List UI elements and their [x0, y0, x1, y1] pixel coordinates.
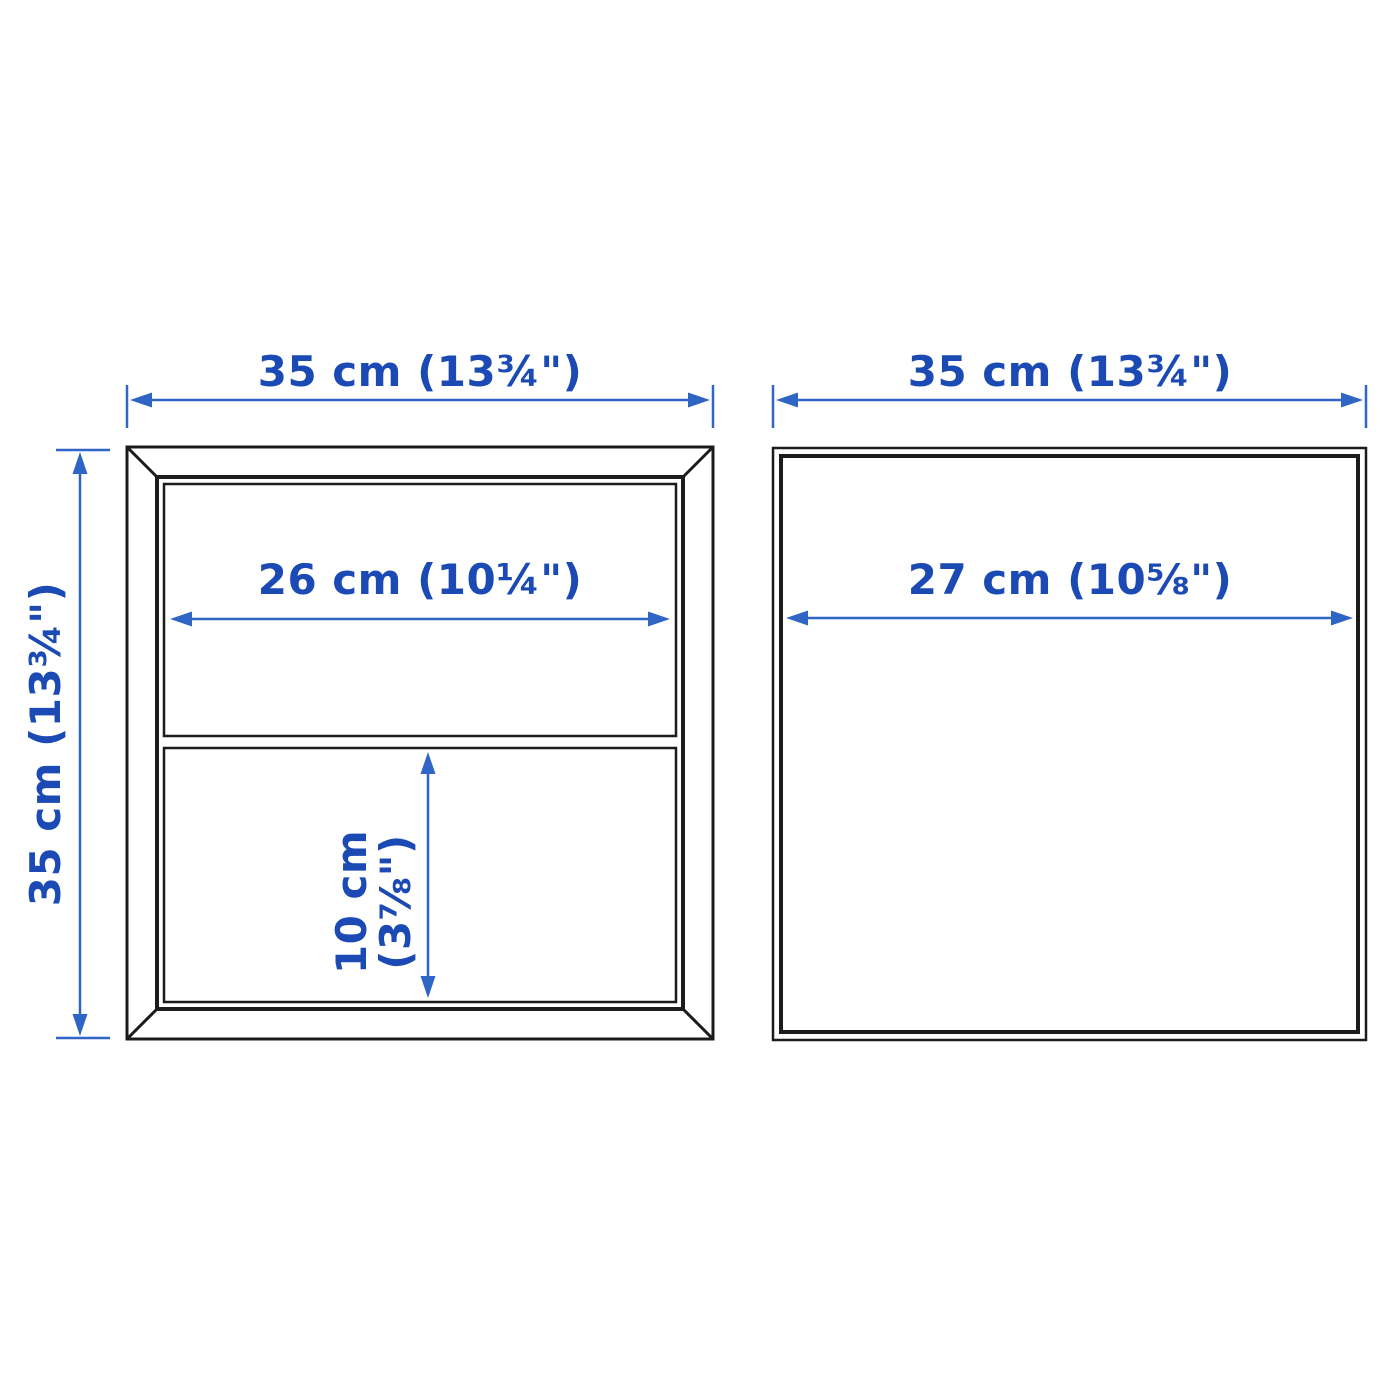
front-inner-height-label-line2: (3⅞") [374, 830, 418, 974]
arrowhead-right-icon [1331, 611, 1353, 626]
arrowhead-up-icon [73, 452, 88, 474]
side-view-drawing [773, 448, 1366, 1040]
side-inner-depth-label: 27 cm (10⅝") [908, 558, 1233, 602]
front-miter-bottom-right [683, 1009, 713, 1039]
front-miter-bottom-left [127, 1009, 157, 1039]
arrowhead-left-icon [776, 393, 798, 408]
front-inner-height-label-line1: 10 cm [330, 830, 374, 974]
front-view-drawing [127, 447, 713, 1039]
arrowhead-down-icon [73, 1014, 88, 1036]
arrowhead-left-icon [170, 612, 192, 627]
front-inner-height-dimension [421, 752, 436, 998]
arrowhead-left-icon [130, 393, 152, 408]
arrowhead-down-icon [421, 976, 436, 998]
dimension-diagram-page: 35 cm (13¾") 35 cm (13¾") 26 cm (10¼") 2… [0, 0, 1400, 1400]
dimension-diagram-svg [0, 0, 1400, 1400]
front-inner-height-label: 10 cm (3⅞") [330, 830, 418, 974]
front-inner-width-label: 26 cm (10¼") [258, 558, 583, 602]
side-inner-panel [781, 456, 1358, 1032]
side-outer-outline [773, 448, 1366, 1040]
front-bottom-compartment [164, 748, 676, 1002]
front-inner-width-dimension [170, 612, 670, 627]
arrowhead-right-icon [1341, 393, 1363, 408]
arrowhead-up-icon [421, 752, 436, 774]
front-height-label: 35 cm (13¾") [24, 582, 68, 907]
arrowhead-left-icon [786, 611, 808, 626]
arrowhead-right-icon [648, 612, 670, 627]
front-top-compartment [164, 484, 676, 736]
front-miter-top-left [127, 447, 157, 477]
front-miter-top-right [683, 447, 713, 477]
arrowhead-right-icon [688, 393, 710, 408]
front-outer-outline [127, 447, 713, 1039]
side-width-label: 35 cm (13¾") [908, 350, 1233, 394]
front-width-label: 35 cm (13¾") [258, 350, 583, 394]
side-inner-depth-dimension [786, 611, 1353, 626]
